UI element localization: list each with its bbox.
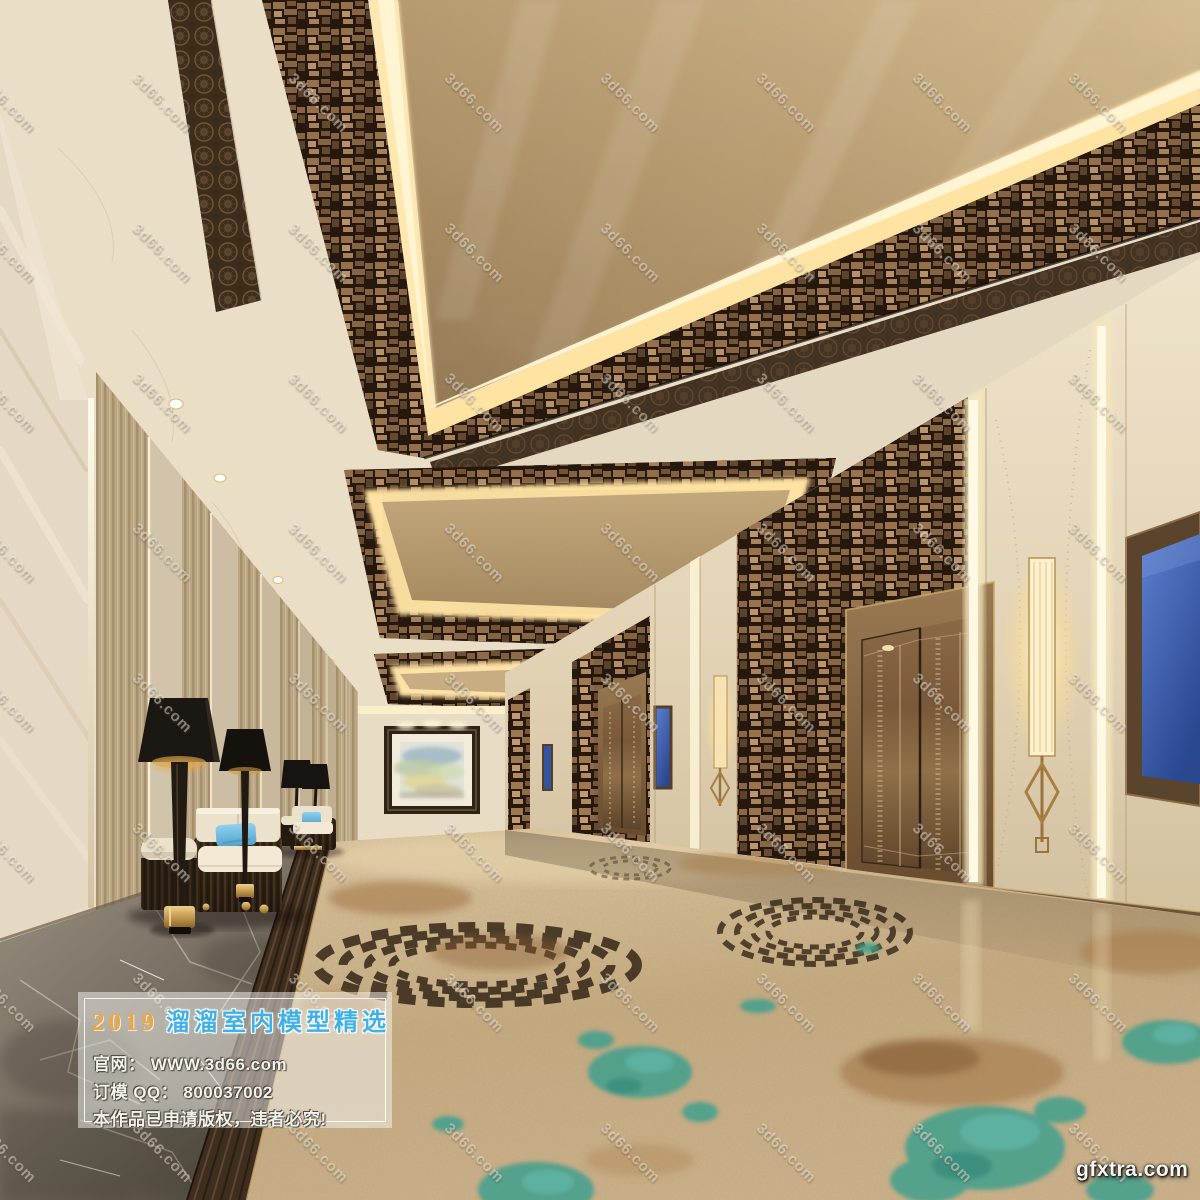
painting	[384, 720, 480, 814]
light-strip-2	[1092, 312, 1112, 902]
info-site-line: 官网： WWW.3d66.com	[93, 1050, 287, 1075]
mosaic-column-far-2	[572, 650, 594, 841]
info-year: 2019	[92, 1009, 158, 1036]
brass-foot	[203, 904, 210, 911]
light-strip-1	[964, 388, 984, 886]
info-title: 溜溜室内模型精选	[166, 1009, 390, 1036]
mosaic-column-far-1	[508, 688, 530, 838]
blue-panel-right	[1126, 512, 1200, 806]
info-title-line: 2019溜溜室内模型精选	[92, 1002, 390, 1037]
light-strip-far	[690, 556, 700, 849]
info-qq-line: 订模 QQ： 800037002	[93, 1078, 273, 1103]
info-copyright-line: 本作品已申请版权，违者必究!	[93, 1105, 327, 1130]
pillar-edge-light	[88, 398, 94, 908]
elevator-doors-far	[594, 616, 650, 842]
corner-watermark: gfxtra.com	[1076, 1158, 1188, 1182]
brass-foot	[260, 905, 269, 914]
blue-panel-small-2	[655, 707, 671, 788]
rendered-interior-screenshot: 3d66.com3d66.com3d66.com3d66.com3d66.com…	[0, 0, 1200, 1200]
info-panel: 2019溜溜室内模型精选 官网： WWW.3d66.com 订模 QQ： 800…	[78, 992, 392, 1128]
blue-pillow-1	[215, 823, 256, 848]
back-wall	[356, 706, 508, 848]
blue-panel-small-1	[543, 745, 552, 790]
brass-foot	[242, 902, 251, 911]
